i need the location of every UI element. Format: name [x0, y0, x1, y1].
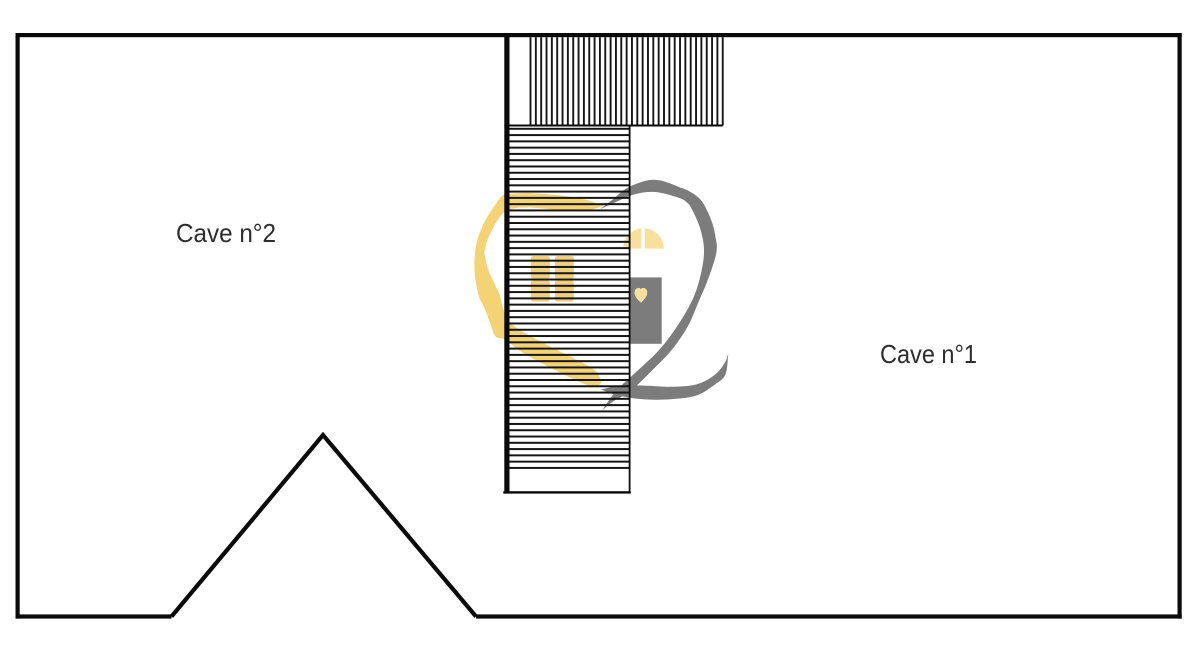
svg-text:Cave n°2: Cave n°2: [176, 218, 276, 248]
svg-text:Cave n°1: Cave n°1: [880, 339, 977, 369]
